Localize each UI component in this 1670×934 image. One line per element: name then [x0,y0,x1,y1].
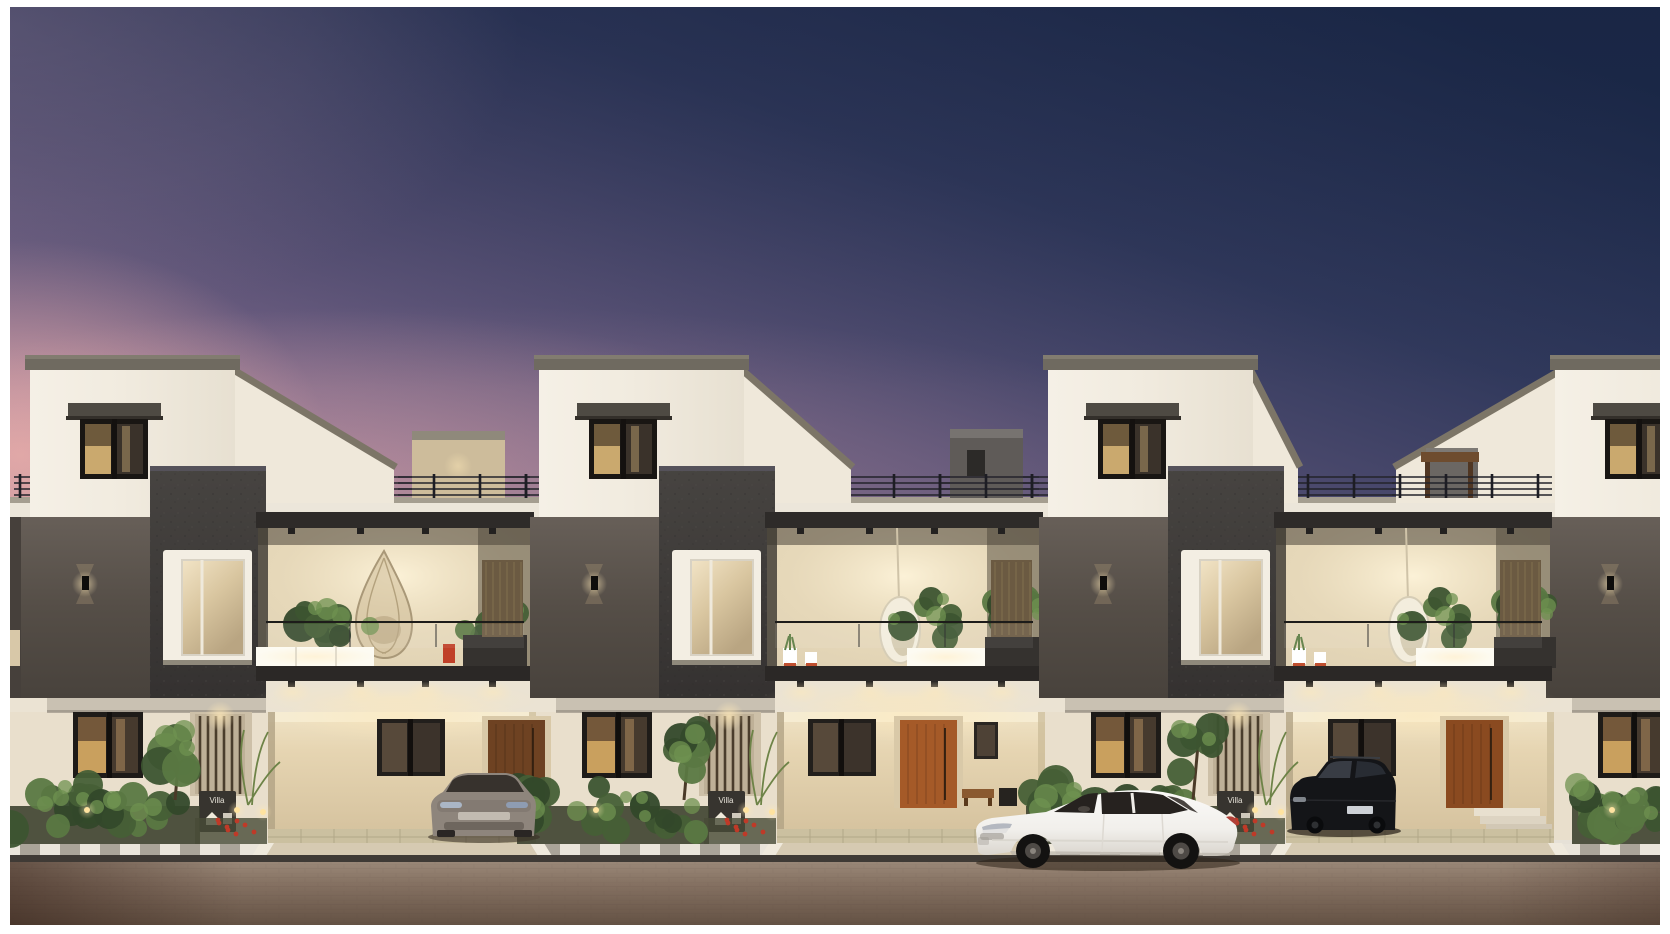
svg-text:Villa: Villa [1228,796,1244,805]
svg-text:Villa: Villa [210,796,226,805]
svg-text:Villa: Villa [719,796,735,805]
